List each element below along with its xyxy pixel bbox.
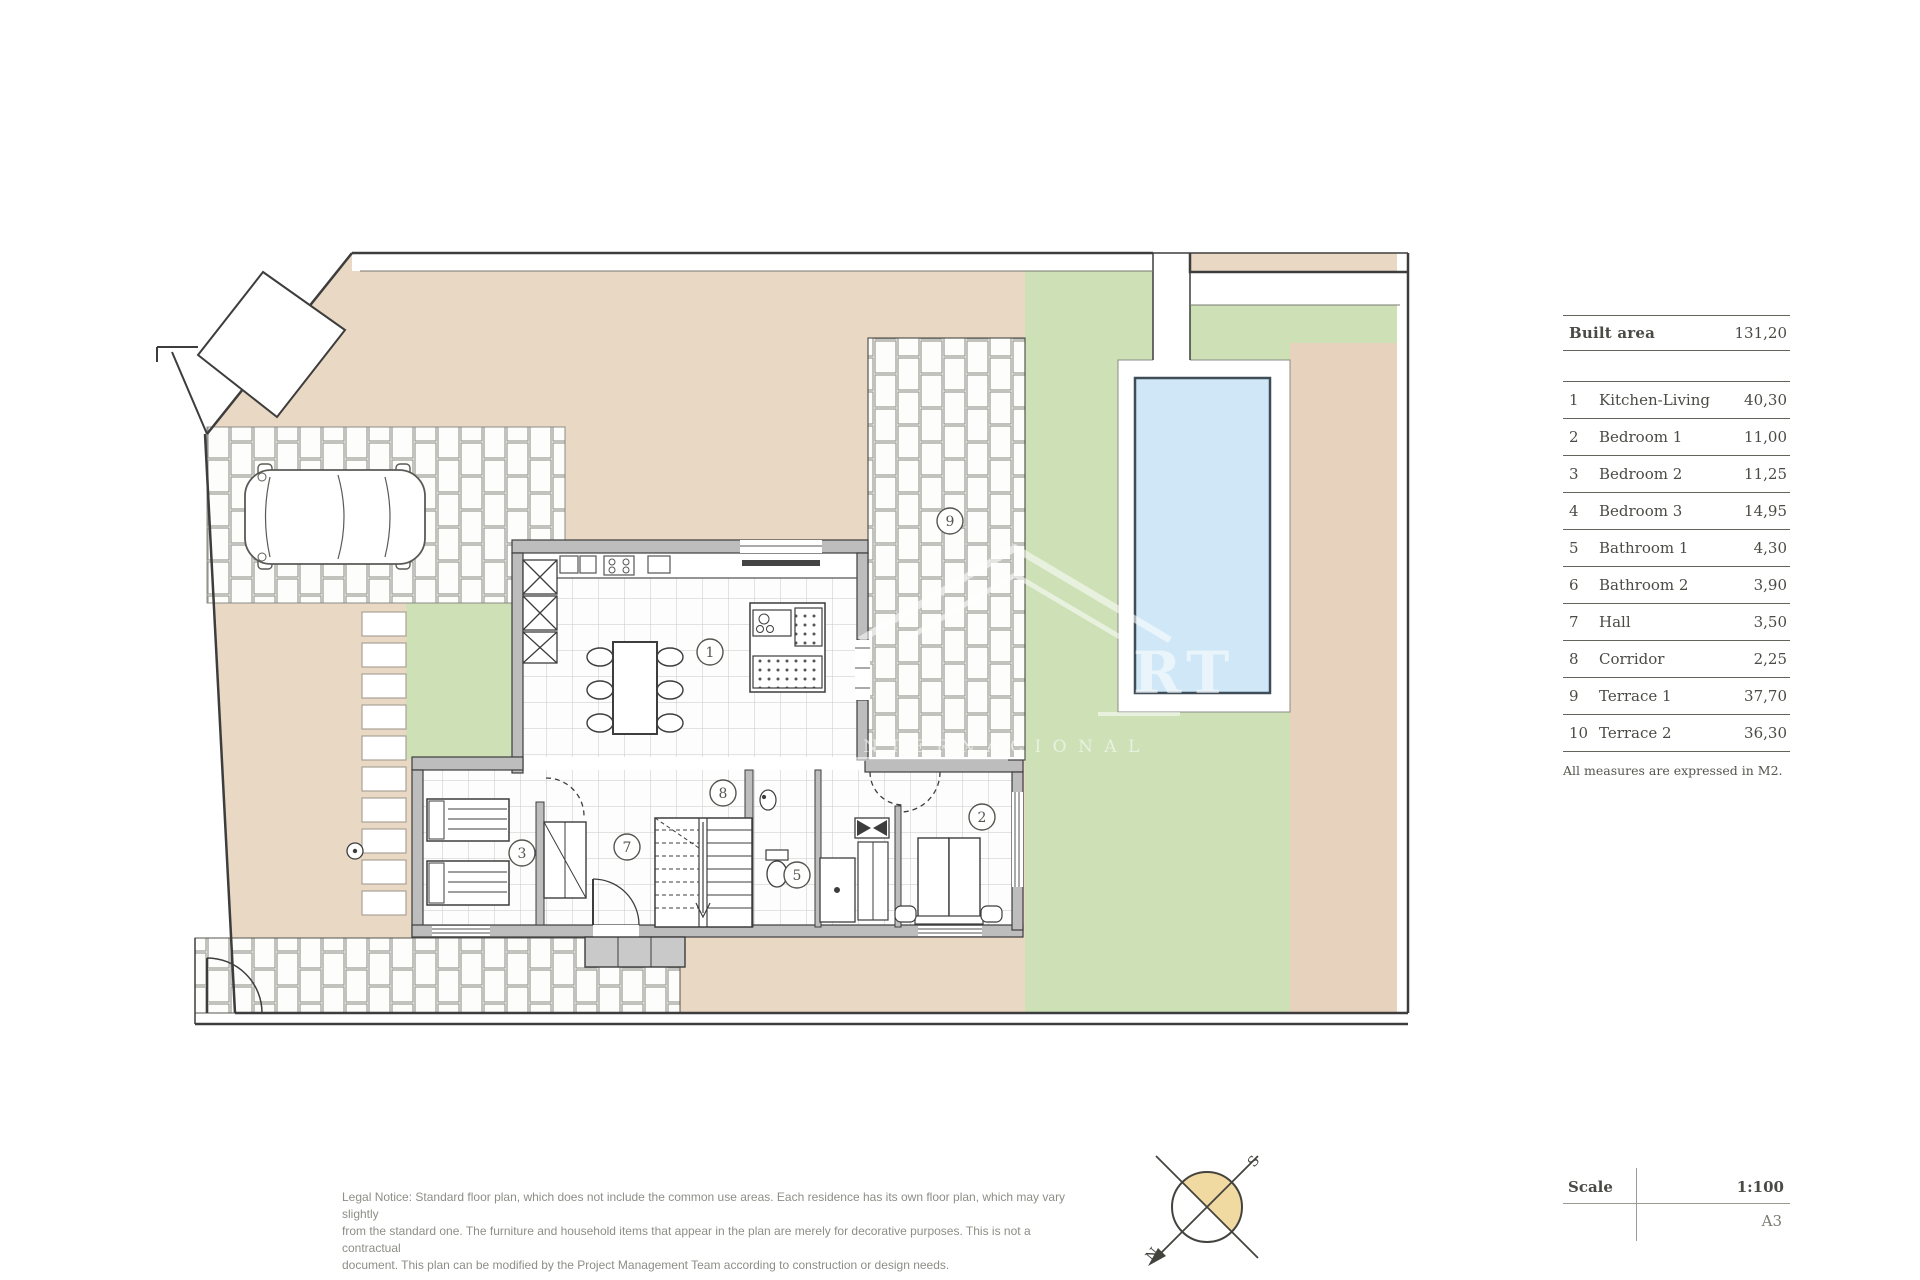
nightstand — [895, 906, 916, 922]
label-hall: 7 — [614, 834, 640, 860]
kitchen-island — [750, 603, 825, 692]
built-area-value: 131,20 — [1735, 324, 1788, 342]
sliding-door — [855, 640, 870, 700]
label-kitchen-living: 1 — [697, 639, 723, 665]
label-corridor: 8 — [710, 780, 736, 806]
title-block-rule — [1563, 1203, 1790, 1204]
table-row: 5Bathroom 14,30 — [1563, 530, 1790, 567]
legal-line: document. This plan can be modified by t… — [342, 1257, 1092, 1274]
table-row: 4Bedroom 314,95 — [1563, 493, 1790, 530]
svg-text:RT: RT — [1133, 639, 1235, 707]
table-row: 8Corridor2,25 — [1563, 641, 1790, 678]
sheet-size: A3 — [1762, 1212, 1782, 1230]
table-row: 10Terrace 236,30 — [1563, 715, 1790, 752]
table-row: 7Hall3,50 — [1563, 604, 1790, 641]
label-bedroom1: 2 — [969, 804, 995, 830]
built-area-label: Built area — [1569, 324, 1655, 342]
scale-label: Scale — [1568, 1178, 1613, 1196]
wall-wing-west — [412, 770, 423, 937]
lawn-left — [406, 603, 512, 759]
floor-drain — [347, 843, 363, 859]
nightstand — [981, 906, 1002, 922]
measures-note: All measures are expressed in M2. — [1563, 763, 1790, 778]
legal-notice: Legal Notice: Standard floor plan, which… — [342, 1189, 1092, 1274]
title-block-divider — [1636, 1168, 1637, 1241]
label-bathroom1: 5 — [784, 862, 810, 888]
terrace-1 — [868, 338, 1025, 760]
svg-text:9: 9 — [946, 514, 955, 530]
svg-text:8: 8 — [719, 786, 728, 802]
table-row: 2Bedroom 111,00 — [1563, 419, 1790, 456]
label-terrace1: 9 — [937, 508, 963, 534]
kitchen-window-sill — [742, 560, 820, 566]
compass-north-letter: N — [1143, 1245, 1163, 1265]
label-bedroom2: 3 — [509, 840, 535, 866]
table-row: 3Bedroom 211,25 — [1563, 456, 1790, 493]
basin-icon — [760, 790, 776, 810]
car-icon — [245, 464, 425, 569]
dining-table — [613, 642, 657, 734]
ground-right-column — [1290, 343, 1397, 1013]
svg-text:I N T E R N A C I O N A L: I N T E R N A C I O N A L — [845, 737, 1142, 757]
built-area-row: Built area 131,20 — [1563, 315, 1790, 351]
title-block: Scale 1:100 A3 — [1563, 1165, 1790, 1245]
wall-living-west — [512, 553, 523, 773]
room-list: 1Kitchen-Living40,30 2Bedroom 111,00 3Be… — [1563, 381, 1790, 752]
legal-line: from the standard one. The furniture and… — [342, 1223, 1092, 1257]
bedroom2-wardrobe — [544, 822, 586, 898]
scale-value: 1:100 — [1737, 1178, 1784, 1196]
floor-plan-sheet: 1 9 8 7 5 3 2 RT I N T E R N A C I O N A… — [0, 0, 1920, 1280]
wall-living-east-a — [857, 553, 868, 640]
dining-set — [587, 642, 683, 734]
wardrobe-living — [523, 560, 557, 663]
table-row: 1Kitchen-Living40,30 — [1563, 382, 1790, 419]
wall-wing-north-left — [412, 757, 523, 770]
compass-south-letter: S — [1245, 1153, 1263, 1171]
svg-text:2: 2 — [978, 810, 987, 826]
svg-text:5: 5 — [793, 868, 802, 884]
svg-text:1: 1 — [706, 645, 715, 661]
compass-rose: N S — [1143, 1153, 1263, 1266]
wall-wing-north-right — [865, 760, 1023, 772]
partition-bedroom2 — [536, 802, 544, 925]
table-row: 9Terrace 137,70 — [1563, 678, 1790, 715]
pool-access-band — [1153, 253, 1190, 363]
svg-text:3: 3 — [518, 846, 527, 862]
svg-text:7: 7 — [623, 840, 632, 856]
table-row: 6Bathroom 23,90 — [1563, 567, 1790, 604]
legal-line: Legal Notice: Standard floor plan, which… — [342, 1189, 1092, 1223]
stair-landing — [585, 937, 685, 967]
area-table: Built area 131,20 1Kitchen-Living40,30 2… — [1563, 315, 1790, 778]
